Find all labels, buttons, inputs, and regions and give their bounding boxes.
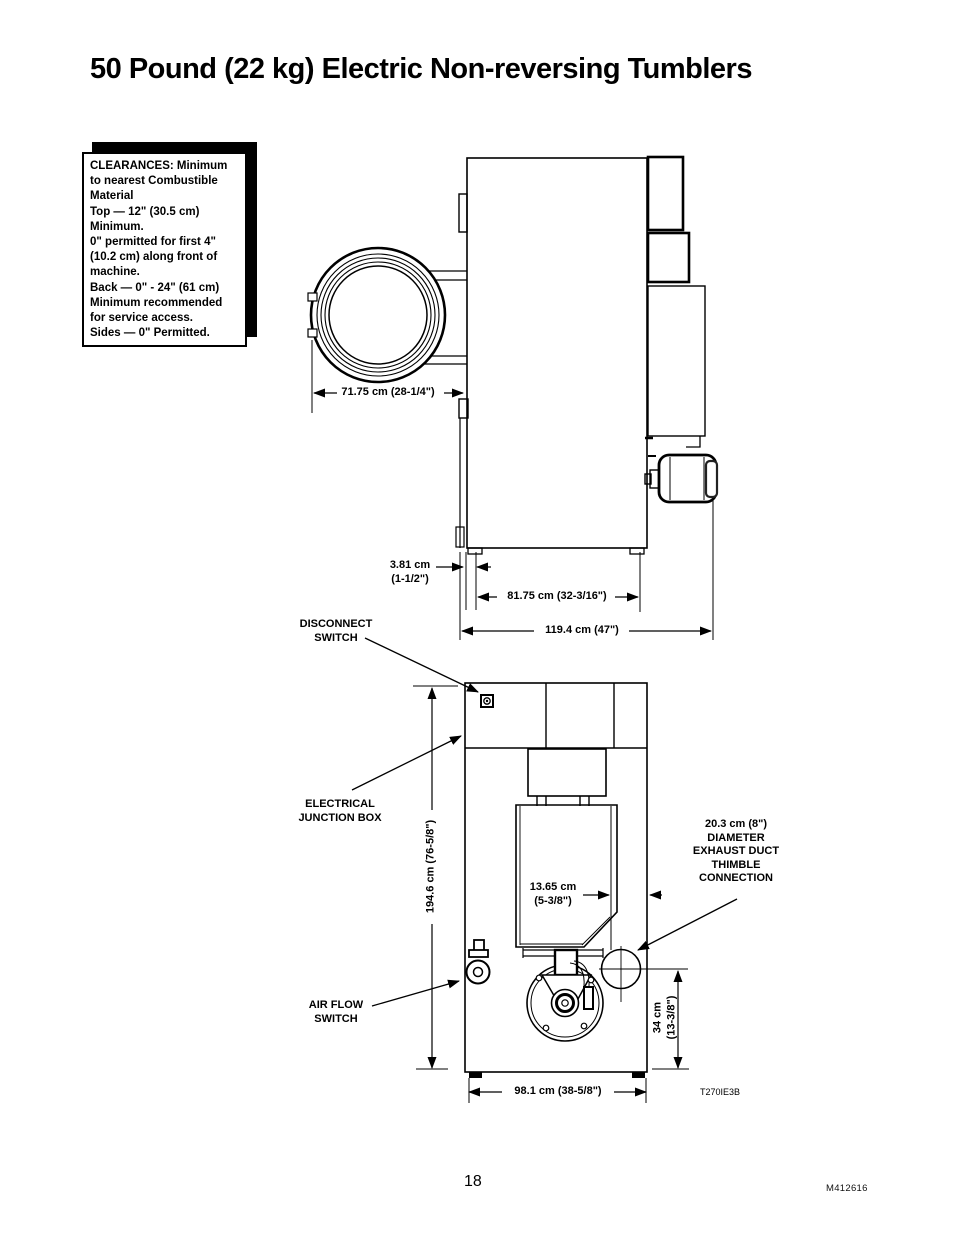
disconnect-switch-icon <box>481 695 493 707</box>
label-air-flow-switch: AIR FLOW SWITCH <box>298 999 374 1026</box>
page-number: 18 <box>464 1173 482 1191</box>
exhaust-duct <box>516 749 617 950</box>
dim-foot-span: 81.75 cm (32-3/16") <box>498 590 616 604</box>
drive-motor <box>645 455 717 502</box>
dim-overall-height: 194.6 cm (76-5/8") <box>425 792 440 942</box>
dim-foot-offset: 3.81 cm (1-1/2") <box>382 559 438 586</box>
dim-door-depth: 71.75 cm (28-1/4") <box>332 386 444 400</box>
page-title: 50 Pound (22 kg) Electric Non-reversing … <box>90 53 910 86</box>
figure-code: T270IE3B <box>700 1087 740 1097</box>
air-flow-switch-icon <box>467 940 490 984</box>
document-number: M412616 <box>826 1183 868 1194</box>
dim-exhaust-height: 34 cm (13-3/8") <box>652 986 679 1050</box>
back-view-drawing <box>352 638 737 1103</box>
dim-overall-width: 98.1 cm (38-5/8") <box>500 1085 616 1099</box>
dim-overall-depth: 119.4 cm (47") <box>536 624 628 638</box>
label-electrical-junction-box: ELECTRICAL JUNCTION BOX <box>290 798 390 825</box>
label-disconnect-switch: DISCONNECT SWITCH <box>288 618 384 645</box>
clearances-note-box: CLEARANCES: Minimum to nearest Combustib… <box>82 152 247 347</box>
blower-fan-housing <box>523 948 603 1041</box>
label-exhaust-duct-connection: 20.3 cm (8") DIAMETER EXHAUST DUCT THIMB… <box>686 818 786 886</box>
manual-page: 50 Pound (22 kg) Electric Non-reversing … <box>0 0 954 1235</box>
loading-door <box>308 248 445 382</box>
machine-body-side <box>467 158 647 548</box>
dim-duct-offset: 13.65 cm (5-3/8") <box>524 881 582 908</box>
